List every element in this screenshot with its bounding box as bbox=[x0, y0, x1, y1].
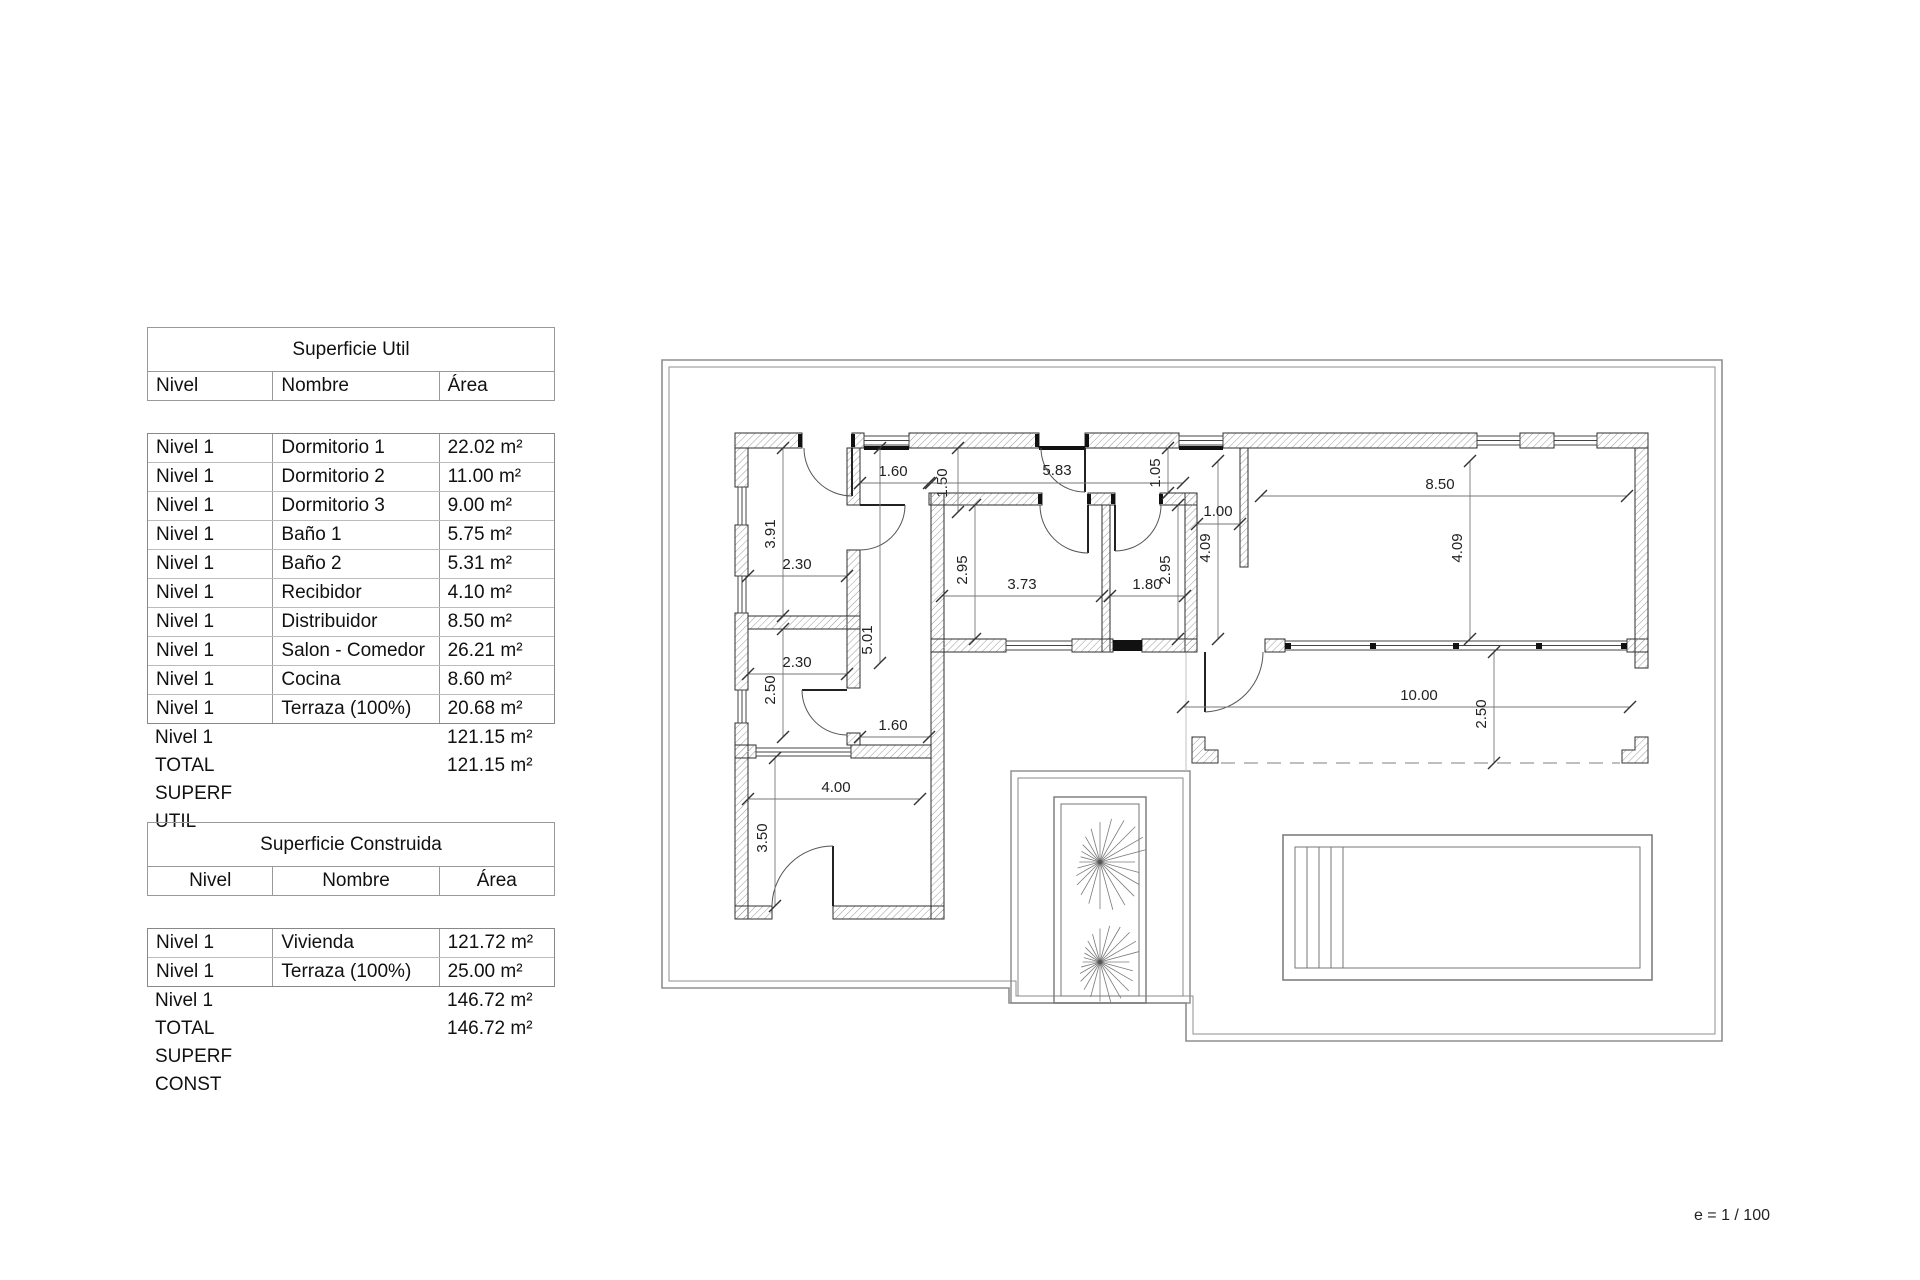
cell-nombre: Distribuidor bbox=[272, 608, 438, 636]
cell-nivel: Nivel 1 bbox=[148, 492, 272, 520]
table-row: Nivel 1146.72 m² bbox=[147, 987, 555, 1015]
plot-boundary bbox=[662, 360, 1722, 1041]
tree-symbols bbox=[1076, 819, 1146, 1002]
cell-area: 26.21 m² bbox=[439, 637, 554, 665]
cell-area: 9.00 m² bbox=[439, 492, 554, 520]
cell-area: 121.15 m² bbox=[439, 752, 555, 780]
dimension-label: 4.00 bbox=[821, 779, 850, 796]
table-row: Nivel 1Cocina8.60 m² bbox=[148, 666, 554, 695]
cell-nivel: Nivel 1 bbox=[148, 637, 272, 665]
table-row: Nivel 1Recibidor4.10 m² bbox=[148, 579, 554, 608]
cell-nivel: Nivel 1 bbox=[148, 463, 272, 491]
cell-area: 20.68 m² bbox=[439, 695, 554, 723]
cell-nombre: Dormitorio 1 bbox=[272, 434, 438, 462]
cell-nivel: TOTAL SUPERF UTIL bbox=[147, 752, 272, 780]
cell-nombre: Vivienda bbox=[272, 929, 438, 957]
cell-nivel: Nivel 1 bbox=[148, 550, 272, 578]
pool bbox=[1283, 835, 1652, 980]
cell-area: 8.60 m² bbox=[439, 666, 554, 694]
table-body: Nivel 1Vivienda121.72 m²Nivel 1Terraza (… bbox=[147, 928, 555, 987]
header-nombre: Nombre bbox=[272, 372, 438, 400]
floorplan-sheet: 1.601.505.831.058.503.912.302.953.731.80… bbox=[0, 0, 1920, 1280]
cell-nivel: Nivel 1 bbox=[148, 958, 272, 986]
dimension-label: 4.09 bbox=[1197, 533, 1214, 562]
cell-nombre bbox=[272, 724, 439, 752]
cell-nombre: Dormitorio 3 bbox=[272, 492, 438, 520]
table-header: Nivel Nombre Área bbox=[147, 867, 555, 896]
terrace-edge bbox=[1186, 652, 1648, 771]
cell-nivel: TOTAL SUPERF CONST bbox=[147, 1015, 272, 1043]
cell-nivel: Nivel 1 bbox=[148, 521, 272, 549]
header-nivel: Nivel bbox=[148, 372, 272, 400]
cell-area: 5.75 m² bbox=[439, 521, 554, 549]
cell-area: 146.72 m² bbox=[439, 987, 555, 1015]
cell-area: 121.72 m² bbox=[439, 929, 554, 957]
table-body: Nivel 1Dormitorio 122.02 m²Nivel 1Dormit… bbox=[147, 433, 555, 724]
cell-area: 8.50 m² bbox=[439, 608, 554, 636]
cell-area: 22.02 m² bbox=[439, 434, 554, 462]
scale-note: e = 1 / 100 bbox=[1694, 1207, 1770, 1224]
dimension-label: 10.00 bbox=[1400, 687, 1438, 704]
dimension-label: 1.60 bbox=[878, 463, 907, 480]
cell-nombre: Terraza (100%) bbox=[272, 958, 438, 986]
cell-nivel: Nivel 1 bbox=[148, 695, 272, 723]
cell-area: 146.72 m² bbox=[439, 1015, 555, 1043]
header-nombre: Nombre bbox=[272, 867, 438, 895]
patio-outline bbox=[1011, 771, 1190, 1003]
table-row: TOTAL SUPERF UTIL121.15 m² bbox=[147, 752, 555, 780]
dimension-label: 1.00 bbox=[1203, 503, 1232, 520]
table-row: Nivel 1Terraza (100%)25.00 m² bbox=[148, 958, 554, 986]
cell-area: 25.00 m² bbox=[439, 958, 554, 986]
cell-nombre bbox=[272, 752, 439, 780]
table-title: Superficie Construida bbox=[147, 822, 555, 867]
dimension-label: 1.60 bbox=[878, 717, 907, 734]
table-row: Nivel 1Baño 25.31 m² bbox=[148, 550, 554, 579]
dimension-label: 2.50 bbox=[1473, 699, 1490, 728]
dimension-label: 3.91 bbox=[762, 519, 779, 548]
cell-area: 5.31 m² bbox=[439, 550, 554, 578]
cell-nivel: Nivel 1 bbox=[148, 579, 272, 607]
dimension-label: 3.73 bbox=[1007, 576, 1036, 593]
table-row: Nivel 1Dormitorio 39.00 m² bbox=[148, 492, 554, 521]
cell-nombre: Salon - Comedor bbox=[272, 637, 438, 665]
cell-nivel: Nivel 1 bbox=[148, 929, 272, 957]
table-row: TOTAL SUPERF CONST146.72 m² bbox=[147, 1015, 555, 1043]
cell-area: 11.00 m² bbox=[439, 463, 554, 491]
cell-nombre: Terraza (100%) bbox=[272, 695, 438, 723]
cell-nombre: Recibidor bbox=[272, 579, 438, 607]
cell-area: 4.10 m² bbox=[439, 579, 554, 607]
cell-nombre bbox=[272, 987, 439, 1015]
table-row: Nivel 1Dormitorio 122.02 m² bbox=[148, 434, 554, 463]
cell-nivel: Nivel 1 bbox=[147, 724, 272, 752]
cell-nombre: Baño 1 bbox=[272, 521, 438, 549]
cell-nombre: Dormitorio 2 bbox=[272, 463, 438, 491]
table-row: Nivel 1Salon - Comedor26.21 m² bbox=[148, 637, 554, 666]
dimension-label: 1.05 bbox=[1147, 458, 1164, 487]
table-title: Superficie Util bbox=[147, 327, 555, 372]
dimension-label: 2.95 bbox=[954, 555, 971, 584]
dimension-label: 2.50 bbox=[762, 675, 779, 704]
dimension-label: 4.09 bbox=[1449, 533, 1466, 562]
table-row: Nivel 1Baño 15.75 m² bbox=[148, 521, 554, 550]
cell-nivel: Nivel 1 bbox=[148, 434, 272, 462]
superficie-util-table: Superficie Util Nivel Nombre Área Nivel … bbox=[147, 327, 555, 780]
cell-nombre: Cocina bbox=[272, 666, 438, 694]
table-row: Nivel 1Dormitorio 211.00 m² bbox=[148, 463, 554, 492]
table-header: Nivel Nombre Área bbox=[147, 372, 555, 401]
dimension-label: 2.30 bbox=[782, 556, 811, 573]
cell-nivel: Nivel 1 bbox=[147, 987, 272, 1015]
dimension-label: 5.01 bbox=[859, 625, 876, 654]
table-totals: Nivel 1121.15 m²TOTAL SUPERF UTIL121.15 … bbox=[147, 724, 555, 780]
header-area: Área bbox=[439, 867, 554, 895]
cell-nombre: Baño 2 bbox=[272, 550, 438, 578]
superficie-construida-table: Superficie Construida Nivel Nombre Área … bbox=[147, 822, 555, 1043]
header-area: Área bbox=[439, 372, 554, 400]
cell-nivel: Nivel 1 bbox=[148, 608, 272, 636]
dimension-label: 2.30 bbox=[782, 654, 811, 671]
table-row: Nivel 1Distribuidor8.50 m² bbox=[148, 608, 554, 637]
dimension-label: 3.50 bbox=[754, 823, 771, 852]
table-row: Nivel 1Terraza (100%)20.68 m² bbox=[148, 695, 554, 723]
cell-nombre bbox=[272, 1015, 439, 1043]
dimension-label: 2.95 bbox=[1157, 555, 1174, 584]
cell-area: 121.15 m² bbox=[439, 724, 555, 752]
table-row: Nivel 1121.15 m² bbox=[147, 724, 555, 752]
table-row: Nivel 1Vivienda121.72 m² bbox=[148, 929, 554, 958]
header-nivel: Nivel bbox=[148, 867, 272, 895]
table-totals: Nivel 1146.72 m²TOTAL SUPERF CONST146.72… bbox=[147, 987, 555, 1043]
cell-nivel: Nivel 1 bbox=[148, 666, 272, 694]
dimension-label: 5.83 bbox=[1042, 462, 1071, 479]
dimension-label: 8.50 bbox=[1425, 476, 1454, 493]
